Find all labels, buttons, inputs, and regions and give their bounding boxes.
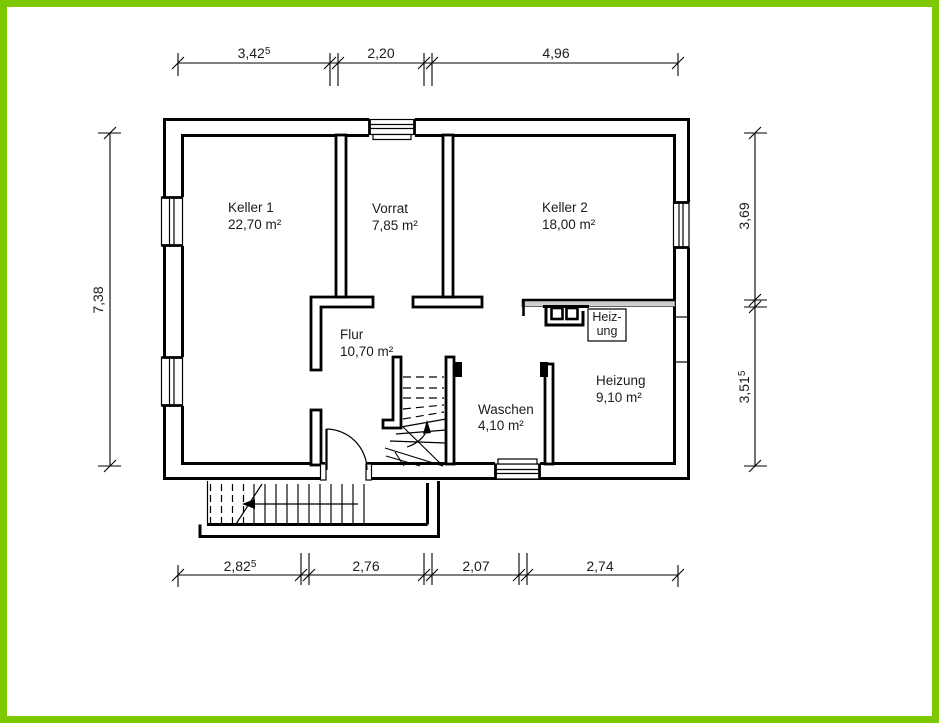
window-symbol — [674, 202, 690, 248]
exterior-door — [321, 429, 372, 480]
dim-label-top-3: 4,96 — [542, 45, 569, 61]
door-leaf-mark — [455, 362, 462, 377]
room-area-heizung: 9,10 m² — [596, 390, 642, 405]
flur-west-wall-lower — [311, 410, 321, 465]
drawing-frame: Heiz- ung — [0, 0, 939, 723]
room-label-vorrat: Vorrat — [372, 201, 408, 216]
exterior-stairs — [200, 481, 441, 538]
window-symbol — [495, 459, 540, 479]
heizung-west-wall — [545, 364, 553, 464]
room-area-waschen: 4,10 m² — [478, 418, 524, 433]
room-area-vorrat: 7,85 m² — [372, 218, 418, 233]
waschen-west-wall — [446, 357, 454, 464]
room-area-keller2: 18,00 m² — [542, 217, 596, 232]
dim-label-left-1: 7,38 — [90, 286, 106, 313]
dim-label-right-1: 3,69 — [736, 202, 752, 229]
floorplan-canvas: Heiz- ung — [7, 7, 932, 716]
dimension-chain-left: 7,38 — [90, 127, 121, 472]
window-symbol — [162, 197, 184, 246]
dim-label-bottom-4: 2,74 — [586, 558, 613, 574]
dim-label-bottom-2: 2,76 — [352, 558, 379, 574]
middle-wall-stub — [413, 297, 482, 307]
boiler-unit-icon — [567, 308, 578, 319]
dimension-chain-bottom: 2,825 2,76 2,07 2,74 — [172, 553, 684, 587]
dim-label-top-1: 3,425 — [238, 45, 271, 61]
dim-label-right-2: 3,515 — [736, 370, 752, 403]
room-label-flur: Flur — [340, 327, 364, 342]
room-label-waschen: Waschen — [478, 402, 534, 417]
boiler-equipment: Heiz- ung — [543, 307, 626, 342]
keller1-vorrat-partition — [336, 135, 346, 297]
dim-label-top-2: 2,20 — [367, 45, 394, 61]
door-swing-arc — [327, 429, 368, 470]
vorrat-keller2-partition — [443, 135, 453, 297]
dimension-chain-right: 3,69 3,515 — [736, 127, 767, 472]
window-symbol — [162, 357, 184, 406]
room-label-keller2: Keller 2 — [542, 200, 588, 215]
room-area-flur: 10,70 m² — [340, 344, 394, 359]
window-symbol — [369, 119, 415, 140]
room-area-keller1: 22,70 m² — [228, 217, 282, 232]
door-leaf-mark — [540, 362, 548, 377]
dim-label-bottom-1: 2,825 — [224, 558, 257, 574]
boiler-unit-icon — [552, 308, 563, 319]
boiler-label-line1: Heiz- — [592, 310, 621, 324]
dim-label-bottom-3: 2,07 — [462, 558, 489, 574]
room-label-heizung: Heizung — [596, 373, 646, 388]
room-label-keller1: Keller 1 — [228, 200, 274, 215]
boiler-label-line2: ung — [597, 324, 618, 338]
dimension-chain-top: 3,425 2,20 4,96 — [172, 45, 684, 86]
stair-west-wall — [383, 357, 401, 428]
